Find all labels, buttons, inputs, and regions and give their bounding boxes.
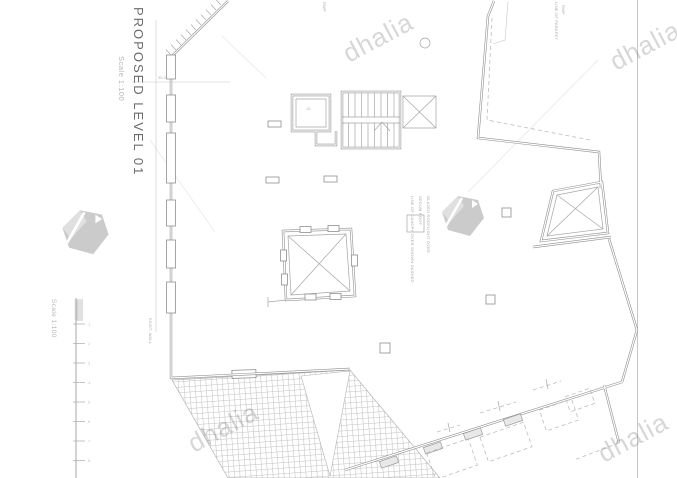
annotation-dimension: 36.5 xyxy=(158,75,166,80)
svg-text:2: 2 xyxy=(88,341,91,346)
annotation-wall: EXIST. WALL xyxy=(148,318,153,344)
stair-core xyxy=(342,92,400,148)
annotation-parapet-1: LINE OF PARAPET xyxy=(554,2,559,40)
drawing-sheet: 12345678 PROPOSED LEVEL 01 Scale 1:100 S… xyxy=(0,0,677,478)
drawing-scale: Scale 1:100 xyxy=(117,56,126,101)
diagonal-wall-hatch xyxy=(166,0,221,55)
annotation-canopy: LINE OF CANOPY OVER SHOWN DASHED xyxy=(410,196,415,283)
stair-void xyxy=(403,96,436,128)
annotation-lift: 16 xyxy=(306,106,310,111)
lift-shaft xyxy=(292,95,330,131)
dashed-canopy-outlines xyxy=(427,18,619,478)
annotation-rooflight: GLAZED ROOFLIGHT OVER xyxy=(426,196,431,253)
central-rooflight-void xyxy=(283,229,355,300)
stair-core xyxy=(342,92,400,148)
scale-ruler: 12345678 xyxy=(73,298,91,478)
scale-ruler-label: Scale 1:100 xyxy=(50,299,57,338)
lift-shaft xyxy=(292,95,330,131)
annotation-sedum: SEDUM ROOF xyxy=(418,196,423,225)
svg-text:7: 7 xyxy=(88,439,91,444)
dhalia-logo-icon xyxy=(442,196,484,236)
scan-artifact-lines xyxy=(150,36,598,232)
floor-plan-drawing: 12345678 xyxy=(0,0,677,478)
svg-text:5: 5 xyxy=(88,400,91,405)
dhalia-logo-icon xyxy=(62,210,108,254)
drawing-title: PROPOSED LEVEL 01 xyxy=(131,7,146,176)
annotation-parapet-2: RWP xyxy=(561,5,566,15)
svg-text:3: 3 xyxy=(88,361,91,366)
central-rooflight-void xyxy=(283,229,355,300)
svg-text:4: 4 xyxy=(88,380,91,385)
column-markers xyxy=(266,121,511,353)
svg-text:1: 1 xyxy=(88,322,91,327)
svg-text:6: 6 xyxy=(88,419,91,424)
svg-text:8: 8 xyxy=(88,458,91,463)
annotation-top: RWP xyxy=(322,2,327,12)
